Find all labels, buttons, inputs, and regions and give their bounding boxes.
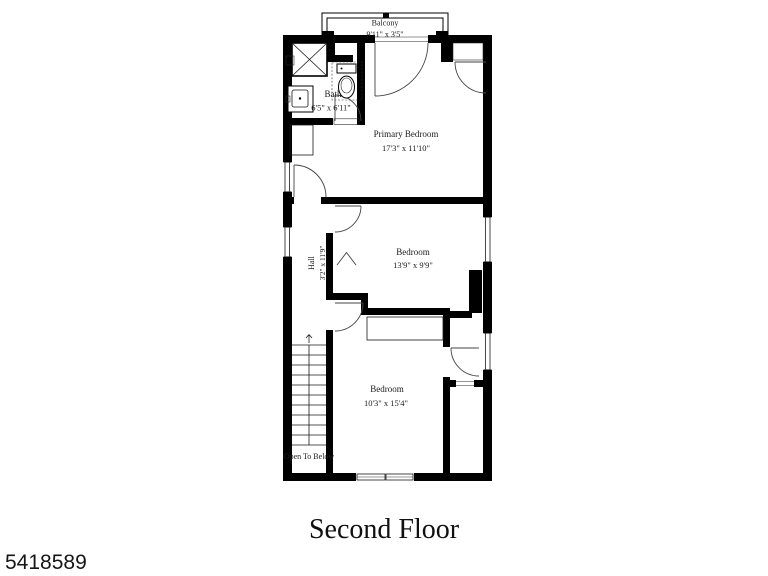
stair-direction-arrow-icon	[306, 335, 312, 344]
room-dims-hall: 3'2" x 11'9"	[318, 246, 327, 281]
room-label-balcony: Balcony	[372, 19, 399, 28]
vestibule-door-arc	[451, 348, 479, 386]
doors	[294, 43, 486, 386]
balcony-door-arc	[375, 43, 428, 96]
window	[356, 472, 414, 482]
shower	[286, 43, 327, 76]
sink-vanity	[286, 86, 313, 112]
window	[282, 227, 293, 257]
staircase	[292, 335, 326, 446]
primary-closet-door-arc	[453, 43, 486, 93]
floor-title: Second Floor	[309, 514, 460, 545]
windows	[282, 162, 493, 482]
room-dims-bath: 6'5" x 6'11"	[311, 103, 350, 113]
room-dims-middle-bedroom: 13'9" x 9'9"	[393, 260, 433, 270]
middle-bedroom-door-arc	[335, 206, 361, 232]
hall-closet	[290, 125, 313, 155]
room-label-primary-bedroom: Primary Bedroom	[374, 129, 439, 139]
room-label-bottom-bedroom: Bedroom	[370, 384, 404, 394]
window	[282, 162, 293, 192]
bedroom-closet	[367, 317, 443, 340]
window	[482, 217, 493, 262]
room-dims-balcony: 9'11" x 3'5"	[366, 30, 403, 39]
floor-plan-drawing: Balcony 9'11" x 3'5" Bath 6'5" x 6'11" P…	[0, 0, 768, 576]
listing-id-label: 5418589	[5, 551, 87, 574]
primary-bedroom-door-arc	[294, 165, 326, 197]
floor-plan-page: Balcony 9'11" x 3'5" Bath 6'5" x 6'11" P…	[0, 0, 768, 576]
room-label-bath: Bath	[325, 89, 342, 99]
room-dims-primary-bedroom: 17'3" x 11'10"	[382, 143, 430, 153]
annotation-open-to-below: Open To Below	[284, 452, 335, 461]
chevron-marker-icon	[337, 253, 356, 266]
room-dims-bottom-bedroom: 10'3" x 15'4"	[364, 398, 408, 408]
window	[482, 333, 493, 370]
chimney-block	[469, 270, 482, 313]
room-label-hall: Hall	[307, 255, 316, 270]
room-label-middle-bedroom: Bedroom	[396, 247, 430, 257]
bottom-bedroom-door-arc	[335, 303, 363, 331]
